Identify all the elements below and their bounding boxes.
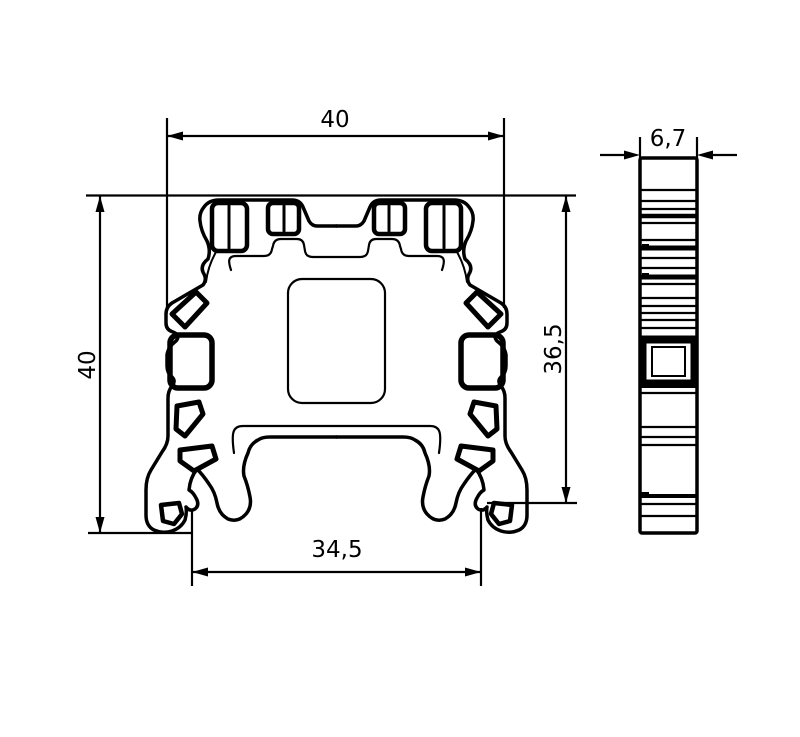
marking-window [288, 279, 385, 403]
dim-depth-top-label: 6,7 [637, 126, 699, 152]
dim-width-top-label: 40 [305, 107, 365, 133]
upper-wedge-cutout [172, 292, 207, 327]
dim-width-bottom-label: 34,5 [296, 537, 378, 563]
technical-drawing-canvas [0, 0, 800, 737]
bottom-shelf-line [233, 426, 441, 453]
dimension-height-left [88, 196, 193, 533]
lower-wedge-cutout [176, 402, 203, 436]
side-screw-recess-inner [652, 347, 685, 376]
dim-height-left-label: 40 [75, 335, 101, 395]
leg-wedge-cutout [180, 446, 216, 471]
front-view-center-details [170, 239, 503, 453]
front-view-right-half [337, 200, 528, 532]
technical-drawing-page: 40 40 36,5 34,5 6,7 [0, 0, 800, 737]
rail-hook-cutout [161, 503, 182, 524]
side-segment-lines [642, 190, 696, 516]
side-view [640, 158, 697, 533]
dim-height-right-label: 36,5 [541, 307, 567, 391]
front-view-left-half [146, 200, 337, 532]
inner-wall-line [229, 239, 444, 270]
